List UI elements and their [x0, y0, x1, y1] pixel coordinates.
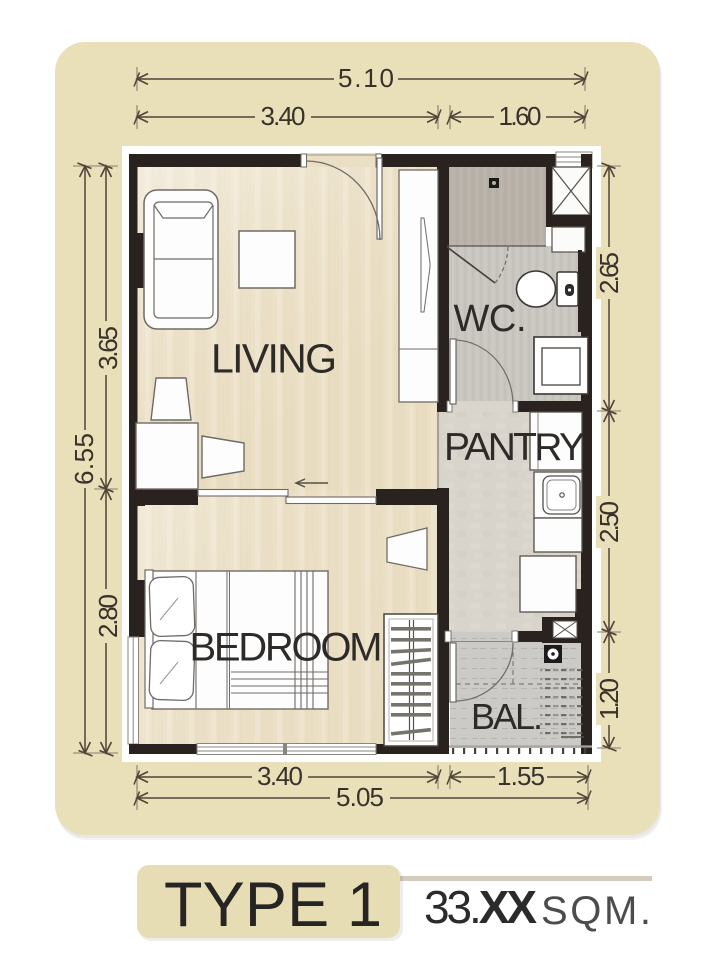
svg-text:PANTRY: PANTRY	[444, 426, 585, 469]
svg-text:2.65: 2.65	[594, 252, 624, 294]
svg-text:33.XX: 33.XX	[424, 881, 537, 933]
svg-text:2.50: 2.50	[594, 501, 624, 543]
svg-text:SQM.: SQM.	[541, 889, 651, 933]
svg-text:1.20: 1.20	[594, 678, 624, 720]
svg-text:3.40: 3.40	[257, 761, 303, 791]
svg-text:LIVING: LIVING	[211, 336, 337, 382]
svg-text:1.60: 1.60	[499, 101, 542, 131]
svg-text:3.40: 3.40	[261, 101, 306, 131]
svg-text:5.05: 5.05	[336, 782, 384, 812]
svg-text:BAL.: BAL.	[471, 696, 543, 737]
svg-text:1.55: 1.55	[497, 761, 545, 791]
svg-text:WC.: WC.	[454, 298, 527, 340]
svg-text:TYPE 1: TYPE 1	[164, 870, 382, 940]
svg-text:3.65: 3.65	[93, 326, 123, 370]
svg-text:5.10: 5.10	[338, 63, 394, 93]
svg-text:BEDROOM: BEDROOM	[190, 626, 383, 670]
svg-text:6.55: 6.55	[69, 433, 99, 485]
svg-text:2.80: 2.80	[93, 594, 123, 638]
